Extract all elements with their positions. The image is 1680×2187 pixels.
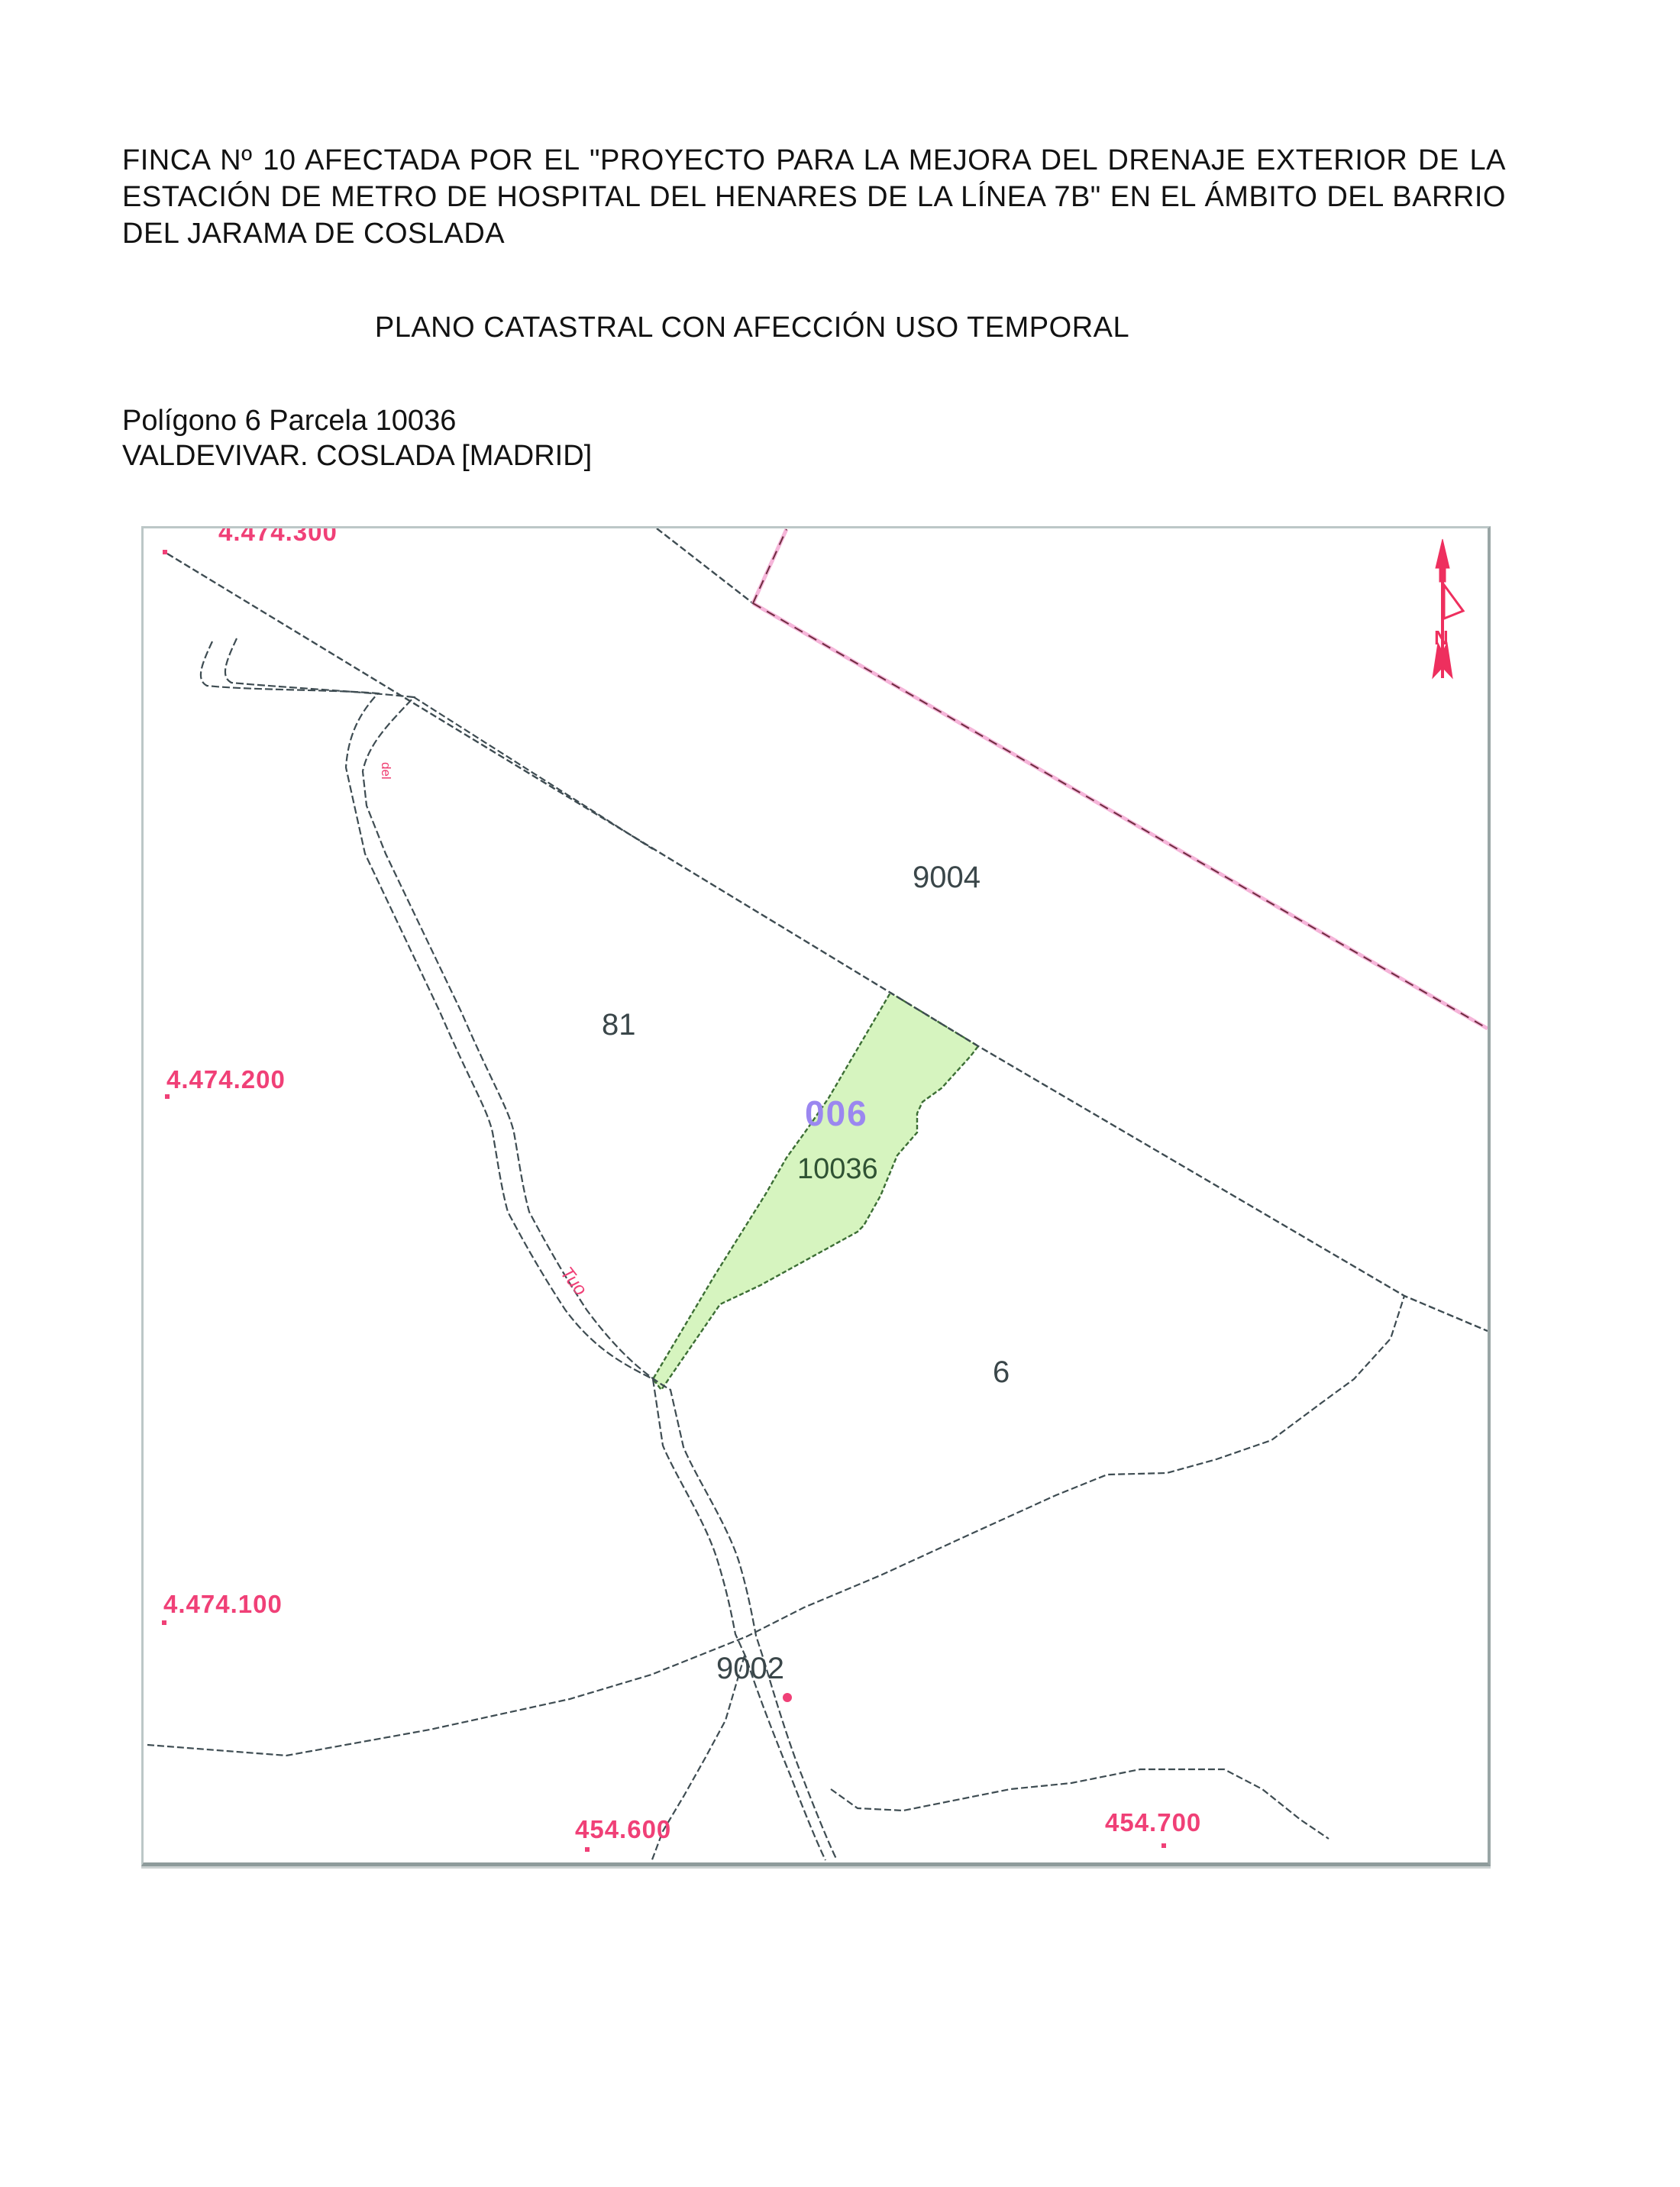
location-block: Polígono 6 Parcela 10036 VALDEVIVAR. COS… [122, 403, 592, 473]
grid-label-4474200: 4.474.200 [166, 1065, 286, 1093]
title-line-2: ESTACIÓN DE METRO DE HOSPITAL DEL HENARE… [122, 179, 1506, 215]
grid-label-4474100: 4.474.100 [163, 1590, 283, 1618]
document-page: { "doc": { "title_lines": [ "FINCA Nº 10… [0, 0, 1680, 2187]
parcel-label-9004: 9004 [913, 861, 981, 894]
boundary-road-branch [414, 697, 653, 849]
pink-marker-dot [783, 1693, 792, 1702]
affected-parcel-number: 10036 [797, 1153, 878, 1185]
title-line-1: FINCA Nº 10 AFECTADA POR EL "PROYECTO PA… [122, 142, 1506, 179]
location-line-parcel: Polígono 6 Parcela 10036 [122, 403, 592, 438]
parcel-label-9002: 9002 [716, 1652, 784, 1685]
municipal-boundary [753, 529, 1488, 1029]
affected-parcel-code: 006 [805, 1093, 868, 1133]
parcel-label-81: 81 [602, 1008, 636, 1042]
map-canvas: 4.474.300 4.474.200 4.474.100 454.600 45… [144, 528, 1488, 1862]
grid-label-4474300: 4.474.300 [218, 528, 338, 546]
boundary-bottom-curve [831, 1769, 1329, 1839]
title-line-3: DEL JARAMA DE COSLADA [122, 215, 1506, 252]
grid-tick-marks [162, 550, 1166, 1852]
north-arrow-icon: N [1433, 539, 1463, 678]
road-label-vertical: del [379, 762, 393, 780]
cadastral-map: 4.474.300 4.474.200 4.474.100 454.600 45… [141, 526, 1491, 1866]
document-subtitle: PLANO CATASTRAL CON AFECCIÓN USO TEMPORA… [122, 312, 1382, 344]
parcel-label-6: 6 [993, 1355, 1010, 1389]
grid-label-454600: 454.600 [575, 1815, 671, 1843]
location-line-municipality: VALDEVIVAR. COSLADA [MADRID] [122, 438, 592, 473]
boundary-parcel6-south [147, 1296, 1404, 1756]
grid-label-454700: 454.700 [1105, 1808, 1201, 1836]
document-title: FINCA Nº 10 AFECTADA POR EL "PROYECTO PA… [122, 142, 1506, 252]
boundary-top-segment [657, 528, 753, 603]
affected-parcel-polygon [653, 993, 978, 1390]
